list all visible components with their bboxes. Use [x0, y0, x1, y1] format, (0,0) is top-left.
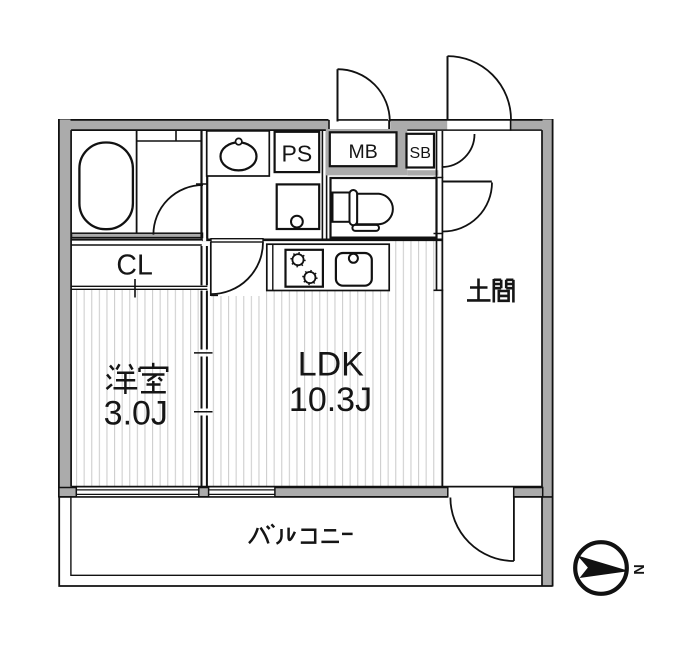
svg-text:10.3J: 10.3J	[289, 381, 372, 419]
svg-text:MB: MB	[348, 141, 377, 163]
svg-text:LDK: LDK	[298, 345, 364, 383]
svg-text:3.0J: 3.0J	[104, 394, 168, 432]
svg-text:CL: CL	[116, 250, 152, 282]
svg-text:PS: PS	[282, 141, 313, 167]
svg-text:SB: SB	[410, 145, 431, 162]
svg-text:N: N	[630, 564, 646, 574]
